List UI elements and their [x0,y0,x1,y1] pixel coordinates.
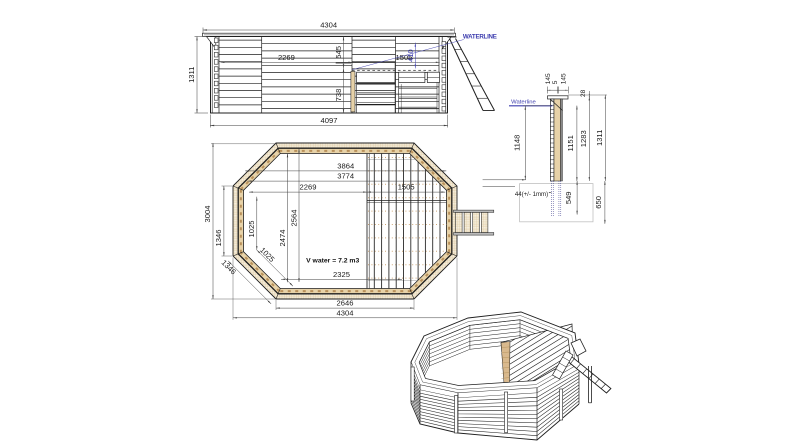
svg-text:3004: 3004 [203,206,212,223]
svg-text:650: 650 [594,196,603,209]
svg-text:Waterline: Waterline [511,100,536,106]
svg-text:410: 410 [406,49,415,62]
svg-text:3864: 3864 [337,161,354,170]
svg-text:4097: 4097 [321,116,338,125]
svg-text:549: 549 [564,191,573,204]
svg-text:4304: 4304 [337,308,354,317]
svg-text:44(+/- 1mm): 44(+/- 1mm) [515,191,548,198]
svg-text:1151: 1151 [566,135,575,151]
svg-text:2269: 2269 [278,53,295,62]
svg-text:545: 545 [334,46,343,59]
svg-text:2269: 2269 [300,183,317,192]
svg-text:28: 28 [580,89,587,97]
svg-text:V water = 7.2 m3: V water = 7.2 m3 [306,257,359,264]
svg-text:WATERLINE: WATERLINE [463,33,497,40]
svg-text:3774: 3774 [337,172,354,181]
svg-text:2646: 2646 [337,299,354,308]
svg-text:738: 738 [334,89,343,102]
svg-text:4304: 4304 [320,21,337,30]
svg-text:2474: 2474 [278,230,287,247]
svg-text:1311: 1311 [187,67,196,83]
svg-text:1505: 1505 [398,183,415,192]
svg-text:1346: 1346 [214,230,223,247]
svg-text:2564: 2564 [289,210,298,227]
svg-text:145: 145 [561,73,568,84]
svg-text:1148: 1148 [512,135,521,151]
svg-text:1311: 1311 [595,130,604,146]
svg-text:1025: 1025 [247,221,256,238]
svg-text:5: 5 [552,80,559,84]
svg-text:2325: 2325 [333,270,350,279]
svg-text:1283: 1283 [579,130,588,147]
